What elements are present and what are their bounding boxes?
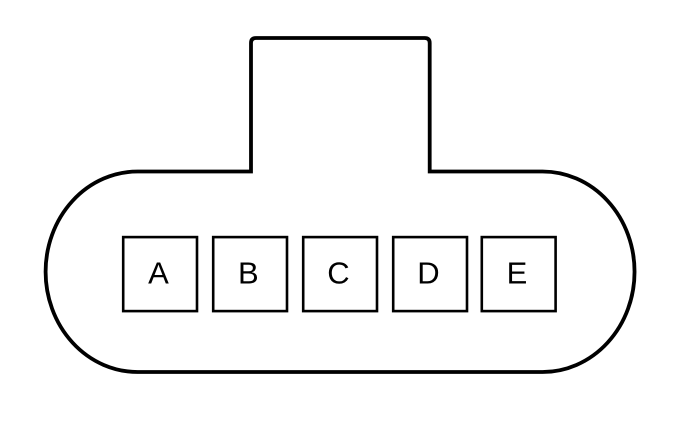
svg-text:B: B	[238, 256, 259, 291]
svg-text:D: D	[417, 256, 439, 291]
svg-text:A: A	[148, 256, 169, 291]
svg-text:E: E	[507, 256, 528, 291]
svg-text:C: C	[327, 256, 349, 291]
